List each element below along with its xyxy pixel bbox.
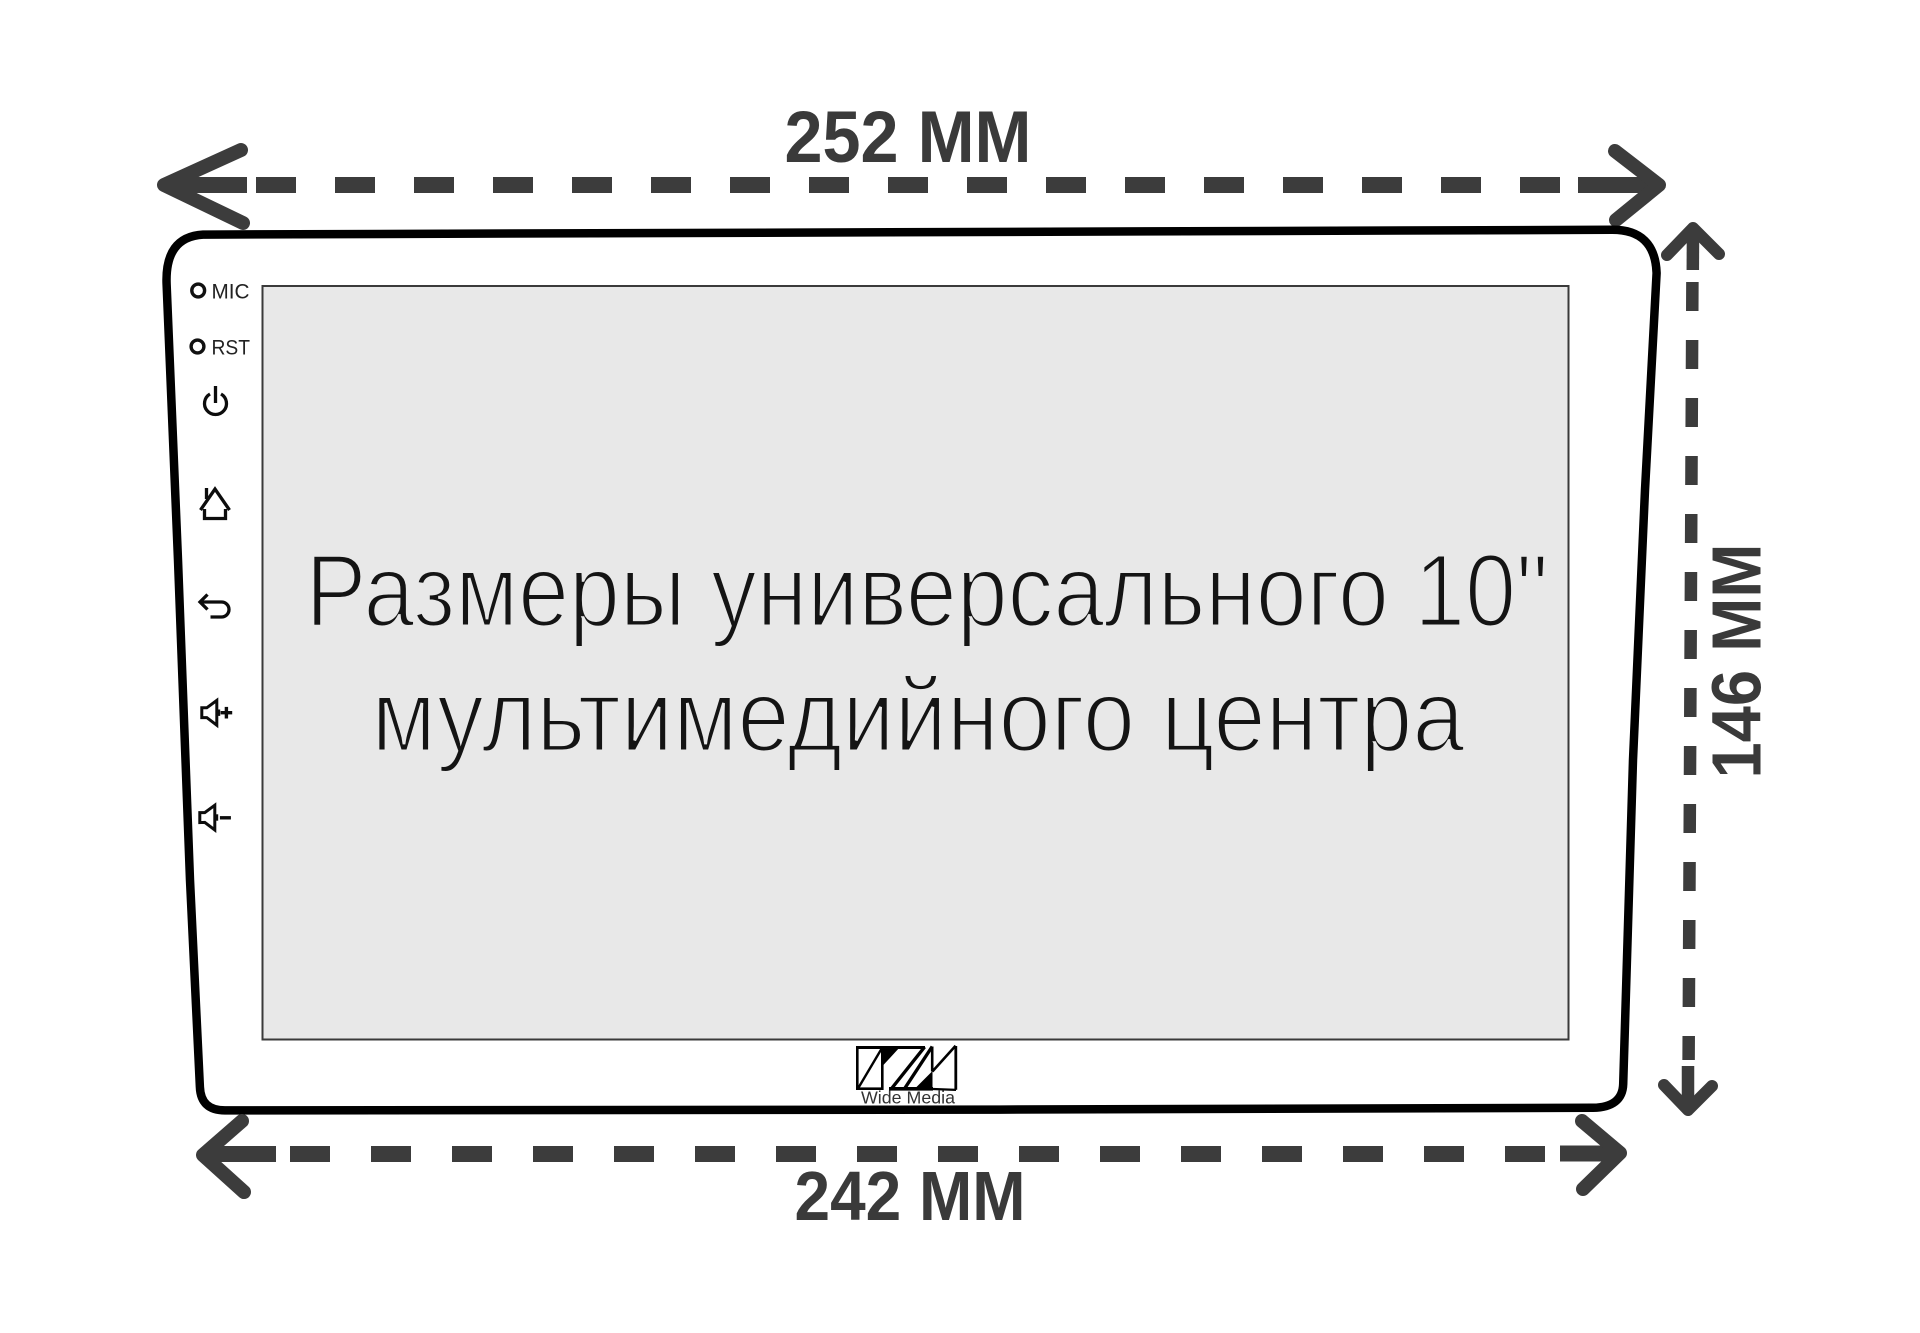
svg-text:MIC: MIC — [212, 280, 250, 303]
svg-text:мультимедийного центра: мультимедийного центра — [372, 658, 1466, 773]
svg-text:RST: RST — [212, 336, 251, 359]
svg-text:242 MM: 242 MM — [795, 1157, 1026, 1235]
svg-text:Размеры универсального 10": Размеры универсального 10" — [306, 533, 1549, 648]
svg-text:252 MM: 252 MM — [785, 97, 1032, 178]
svg-text:146 MM: 146 MM — [1698, 544, 1776, 779]
svg-text:Wide Media: Wide Media — [861, 1088, 955, 1108]
